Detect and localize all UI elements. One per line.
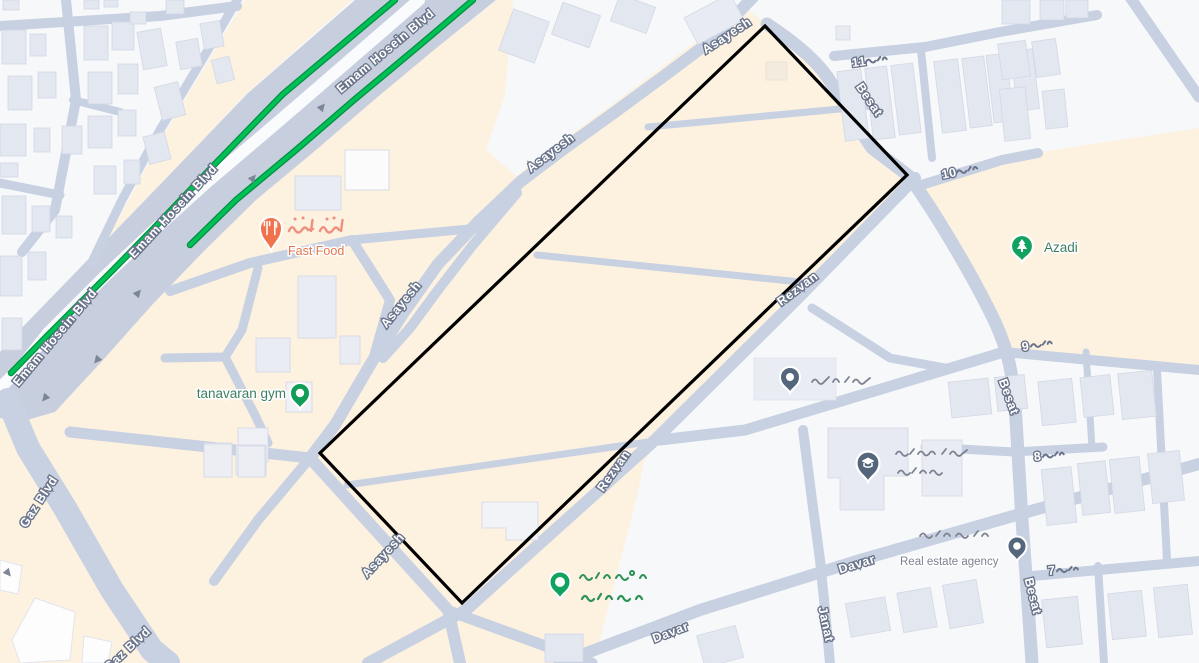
svg-text:11: 11 — [851, 54, 867, 70]
svg-text:7: 7 — [1047, 563, 1056, 578]
svg-text:Real estate agency: Real estate agency — [900, 556, 999, 568]
svg-text:Azadi: Azadi — [1044, 240, 1078, 255]
svg-text:tanavaran gym: tanavaran gym — [197, 386, 286, 401]
svg-text:Fast Food: Fast Food — [288, 244, 344, 258]
